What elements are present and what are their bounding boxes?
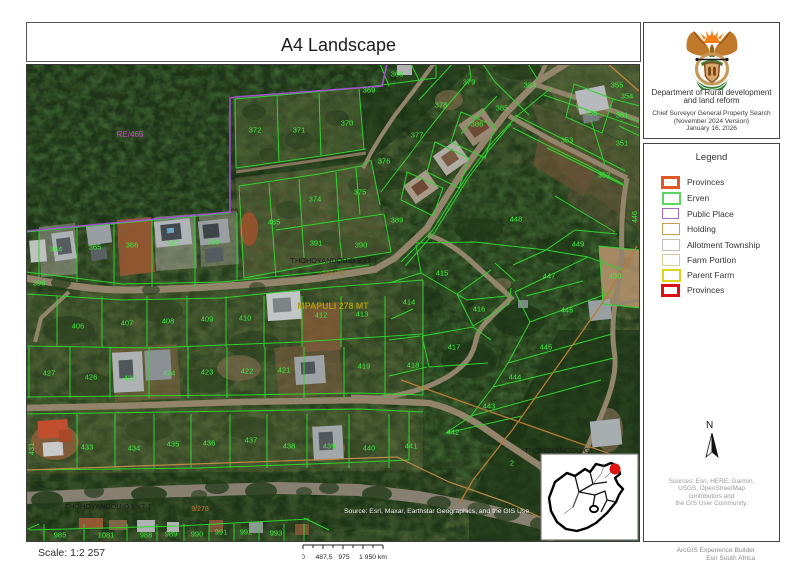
svg-text:352: 352 — [598, 171, 611, 180]
svg-text:364: 364 — [50, 245, 63, 254]
svg-text:450: 450 — [609, 272, 622, 281]
svg-text:465: 465 — [268, 218, 281, 227]
svg-text:353: 353 — [561, 136, 574, 145]
svg-text:487,5: 487,5 — [315, 554, 332, 561]
svg-text:356: 356 — [585, 109, 598, 118]
svg-text:427: 427 — [43, 369, 56, 378]
svg-text:RE/465: RE/465 — [117, 130, 144, 139]
svg-text:435: 435 — [167, 440, 180, 449]
svg-text:408: 408 — [162, 317, 175, 326]
svg-text:370: 370 — [341, 119, 354, 128]
svg-text:442: 442 — [447, 428, 460, 437]
svg-text:375: 375 — [354, 188, 367, 197]
svg-text:449: 449 — [572, 240, 585, 249]
svg-text:446: 446 — [632, 211, 639, 223]
svg-text:431: 431 — [27, 443, 36, 456]
svg-text:384: 384 — [524, 81, 537, 90]
svg-text:389: 389 — [391, 216, 404, 225]
svg-text:415: 415 — [436, 269, 449, 278]
svg-text:374: 374 — [309, 195, 322, 204]
svg-text:992: 992 — [240, 528, 253, 537]
svg-text:447: 447 — [543, 272, 556, 281]
svg-text:422: 422 — [241, 367, 254, 376]
svg-text:985: 985 — [54, 531, 67, 540]
svg-text:440: 440 — [363, 444, 376, 453]
svg-text:372: 372 — [249, 126, 262, 135]
svg-text:438: 438 — [283, 442, 296, 451]
svg-text:365: 365 — [89, 243, 102, 252]
svg-text:407: 407 — [121, 319, 134, 328]
svg-text:0: 0 — [302, 554, 305, 561]
svg-text:406: 406 — [72, 322, 85, 331]
svg-text:385: 385 — [496, 104, 509, 113]
svg-text:414: 414 — [403, 298, 416, 307]
svg-text:418: 418 — [407, 361, 420, 370]
svg-text:444: 444 — [509, 373, 522, 382]
svg-text:410: 410 — [239, 314, 252, 323]
svg-text:381: 381 — [616, 111, 629, 120]
svg-text:355: 355 — [611, 81, 624, 90]
svg-text:1 950 km: 1 950 km — [359, 554, 387, 561]
svg-text:391: 391 — [310, 239, 323, 248]
svg-text:419: 419 — [358, 362, 371, 371]
svg-text:436: 436 — [203, 439, 216, 448]
svg-text:371: 371 — [293, 126, 306, 135]
svg-text:409: 409 — [201, 315, 214, 324]
svg-text:417: 417 — [448, 343, 461, 352]
svg-text:386: 386 — [471, 120, 484, 129]
svg-text:993: 993 — [270, 529, 283, 538]
svg-text:354: 354 — [621, 92, 634, 101]
svg-text:433: 433 — [81, 443, 94, 452]
svg-text:446: 446 — [561, 306, 574, 315]
svg-text:378: 378 — [435, 101, 448, 110]
svg-text:437: 437 — [245, 436, 258, 445]
svg-text:445: 445 — [540, 343, 553, 352]
svg-text:9/278: 9/278 — [191, 506, 209, 513]
svg-text:425: 425 — [124, 374, 137, 383]
svg-text:MPAPULI 278 MT: MPAPULI 278 MT — [297, 301, 369, 311]
svg-text:448: 448 — [510, 215, 523, 224]
svg-text:376: 376 — [378, 157, 391, 166]
svg-text:379: 379 — [463, 78, 476, 87]
svg-text:368: 368 — [391, 70, 404, 79]
svg-text:439: 439 — [323, 442, 336, 451]
svg-text:THOHOYANDOU-D EXT 1: THOHOYANDOU-D EXT 1 — [291, 256, 378, 265]
svg-text:441: 441 — [405, 442, 418, 451]
svg-text:367: 367 — [167, 239, 180, 248]
svg-text:434: 434 — [128, 444, 141, 453]
svg-text:424: 424 — [163, 369, 176, 378]
svg-text:443: 443 — [483, 402, 496, 411]
svg-text:975: 975 — [338, 554, 350, 561]
svg-text:989: 989 — [165, 530, 178, 539]
svg-text:2: 2 — [510, 459, 514, 468]
svg-text:393: 393 — [207, 238, 220, 247]
svg-text:991: 991 — [215, 528, 228, 537]
svg-text:423: 423 — [201, 368, 214, 377]
svg-text:Source: Esri, Maxar, Earthstar: Source: Esri, Maxar, Earthstar Geographi… — [344, 508, 529, 515]
svg-text:988: 988 — [140, 531, 153, 540]
svg-text:990: 990 — [191, 530, 204, 539]
svg-text:1081: 1081 — [98, 531, 115, 540]
svg-text:416: 416 — [473, 305, 486, 314]
svg-text:398: 398 — [33, 279, 46, 288]
svg-text:14/278: 14/278 — [322, 270, 344, 277]
svg-text:351: 351 — [616, 139, 629, 148]
svg-text:426: 426 — [85, 373, 98, 382]
svg-text:377: 377 — [411, 131, 424, 140]
svg-text:421: 421 — [278, 366, 291, 375]
svg-text:THOHOYANDOU-D EXT 1: THOHOYANDOU-D EXT 1 — [65, 502, 152, 511]
svg-text:369: 369 — [363, 86, 376, 95]
svg-text:366: 366 — [126, 241, 139, 250]
svg-text:390: 390 — [355, 241, 368, 250]
svg-text:412: 412 — [315, 311, 328, 320]
